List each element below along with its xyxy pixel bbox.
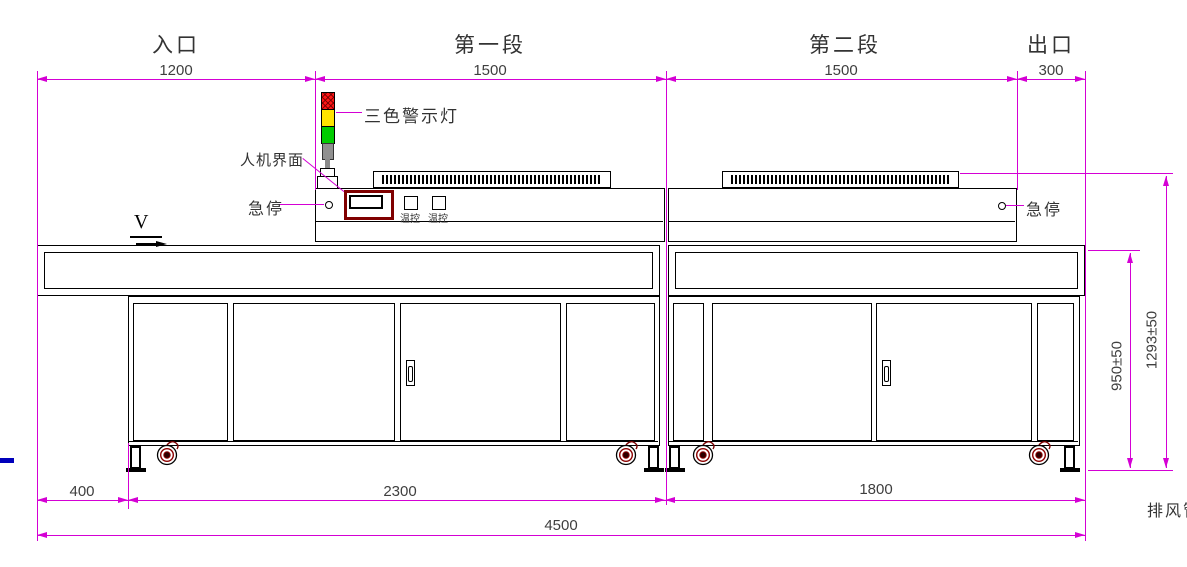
cabinet-door bbox=[233, 303, 395, 441]
arrowhead bbox=[305, 76, 315, 82]
dim-text-4500: 4500 bbox=[544, 517, 577, 534]
dim-text-1500a: 1500 bbox=[473, 62, 506, 79]
hmi-label: 人机界面 bbox=[240, 149, 304, 170]
arrowhead bbox=[37, 497, 47, 503]
arrowhead bbox=[315, 76, 325, 82]
arrowhead bbox=[1075, 76, 1085, 82]
caster-wheel bbox=[155, 439, 181, 469]
conveyor-direction-label: V bbox=[134, 211, 148, 234]
arrowhead bbox=[1075, 497, 1085, 503]
hmi-screen-inner bbox=[349, 195, 383, 209]
door-handle-slot bbox=[408, 366, 413, 382]
direction-underline bbox=[130, 236, 162, 238]
dim-text-1293: 1293±50 bbox=[1144, 311, 1161, 369]
caster-wheel bbox=[614, 439, 640, 469]
extension-line bbox=[37, 71, 38, 541]
warning-light-green bbox=[321, 126, 335, 144]
arrowhead bbox=[1127, 458, 1133, 468]
dim-text-1200: 1200 bbox=[159, 62, 192, 79]
direction-arrow-line bbox=[136, 243, 158, 245]
arrowhead bbox=[656, 76, 666, 82]
arrowhead bbox=[1163, 458, 1169, 468]
dim-line-section1 bbox=[315, 79, 666, 80]
machine-leg bbox=[130, 446, 141, 469]
leader-warning-light bbox=[336, 112, 362, 113]
warning-light-pole bbox=[322, 143, 334, 160]
dim-text-2300: 2300 bbox=[383, 483, 416, 500]
temp-controller-1 bbox=[404, 196, 418, 210]
arrowhead bbox=[37, 76, 47, 82]
leveling-foot bbox=[1060, 468, 1080, 472]
exhaust-duct-label: 排风管 bbox=[1147, 497, 1187, 521]
estop-button-left bbox=[325, 201, 333, 209]
arrowhead bbox=[1163, 176, 1169, 186]
leader-estop-left bbox=[279, 204, 324, 205]
caster-wheel bbox=[1027, 439, 1053, 469]
cabinet-left-kick-line bbox=[128, 441, 658, 442]
dim-line-section2 bbox=[666, 79, 1017, 80]
extension-line bbox=[1085, 71, 1086, 541]
extension-line bbox=[1088, 470, 1173, 471]
dim-text-1800: 1800 bbox=[859, 481, 892, 498]
cabinet-door bbox=[400, 303, 561, 441]
door-handle-slot bbox=[884, 366, 889, 382]
vent-grille-stripes bbox=[382, 175, 602, 184]
section-label-2: 第二段 bbox=[809, 29, 881, 59]
extension-line bbox=[315, 71, 316, 190]
dim-text-400: 400 bbox=[69, 483, 94, 500]
machine-leg bbox=[669, 446, 680, 469]
arrowhead bbox=[118, 497, 128, 503]
leveling-foot bbox=[126, 468, 146, 472]
arrowhead bbox=[665, 497, 675, 503]
estop-label-right: 急停 bbox=[1026, 196, 1062, 220]
caster-wheel bbox=[691, 439, 717, 469]
conveyor-table-left-inner bbox=[44, 252, 653, 289]
temp-controller-label-1: 温控 bbox=[400, 210, 420, 225]
arrowhead bbox=[1127, 253, 1133, 263]
oven-section-2-divider bbox=[669, 221, 1015, 222]
warning-light-stem bbox=[325, 159, 330, 168]
cabinet-right-kick-line bbox=[668, 441, 1078, 442]
estop-button-right bbox=[998, 202, 1006, 210]
section-label-exit: 出口 bbox=[1027, 29, 1075, 59]
cabinet-panel bbox=[1037, 303, 1074, 441]
estop-label-left: 急停 bbox=[248, 195, 284, 219]
arrowhead bbox=[128, 497, 138, 503]
temp-controller-2 bbox=[432, 196, 446, 210]
oven-section-1-divider bbox=[316, 221, 663, 222]
dim-text-300: 300 bbox=[1038, 62, 1063, 79]
arrowhead bbox=[666, 76, 676, 82]
section-label-1: 第一段 bbox=[454, 29, 526, 59]
arrowhead bbox=[1075, 532, 1085, 538]
cabinet-door bbox=[133, 303, 228, 441]
dim-line-2300 bbox=[128, 500, 665, 501]
conveyor-table-right-inner bbox=[675, 252, 1078, 289]
arrowhead bbox=[1007, 76, 1017, 82]
cabinet-door bbox=[712, 303, 872, 441]
extension-line bbox=[960, 173, 1173, 174]
section-label-entrance: 入口 bbox=[152, 29, 200, 59]
extension-line bbox=[1088, 250, 1140, 251]
hmi-screen bbox=[344, 190, 394, 220]
leader-estop-right bbox=[1006, 205, 1024, 206]
direction-arrowhead bbox=[156, 241, 167, 247]
dim-line-1293 bbox=[1166, 176, 1167, 468]
dim-text-1500b: 1500 bbox=[824, 62, 857, 79]
cabinet-panel bbox=[673, 303, 704, 441]
oven-section-2 bbox=[668, 188, 1017, 242]
warning-light-red bbox=[321, 92, 335, 110]
leveling-foot bbox=[665, 468, 685, 472]
warning-light-yellow bbox=[321, 109, 335, 127]
arrowhead bbox=[37, 532, 47, 538]
leveling-foot bbox=[644, 468, 664, 472]
dim-text-950: 950±50 bbox=[1109, 341, 1126, 391]
cad-drawing-conveyor-oven: V 入口 第一段 第二段 出口 1200 1500 1500 300 400 2… bbox=[0, 0, 1187, 567]
dim-line-entrance bbox=[37, 79, 315, 80]
cabinet-door bbox=[876, 303, 1032, 441]
dim-line-950 bbox=[1130, 253, 1131, 468]
dim-line-4500 bbox=[37, 535, 1085, 536]
warning-light-label: 三色警示灯 bbox=[364, 102, 459, 127]
dim-line-1800 bbox=[665, 500, 1085, 501]
vent-grille-right bbox=[722, 171, 959, 188]
cabinet-door bbox=[566, 303, 655, 441]
stray-blue-mark bbox=[0, 458, 14, 463]
arrowhead bbox=[655, 497, 665, 503]
dim-line-400 bbox=[37, 500, 128, 501]
machine-leg bbox=[1064, 446, 1075, 469]
vent-grille-left bbox=[373, 171, 611, 188]
vent-grille-stripes bbox=[731, 175, 950, 184]
arrowhead bbox=[1017, 76, 1027, 82]
extension-line bbox=[666, 71, 667, 505]
temp-controller-label-2: 温控 bbox=[428, 210, 448, 225]
machine-leg bbox=[648, 446, 659, 469]
